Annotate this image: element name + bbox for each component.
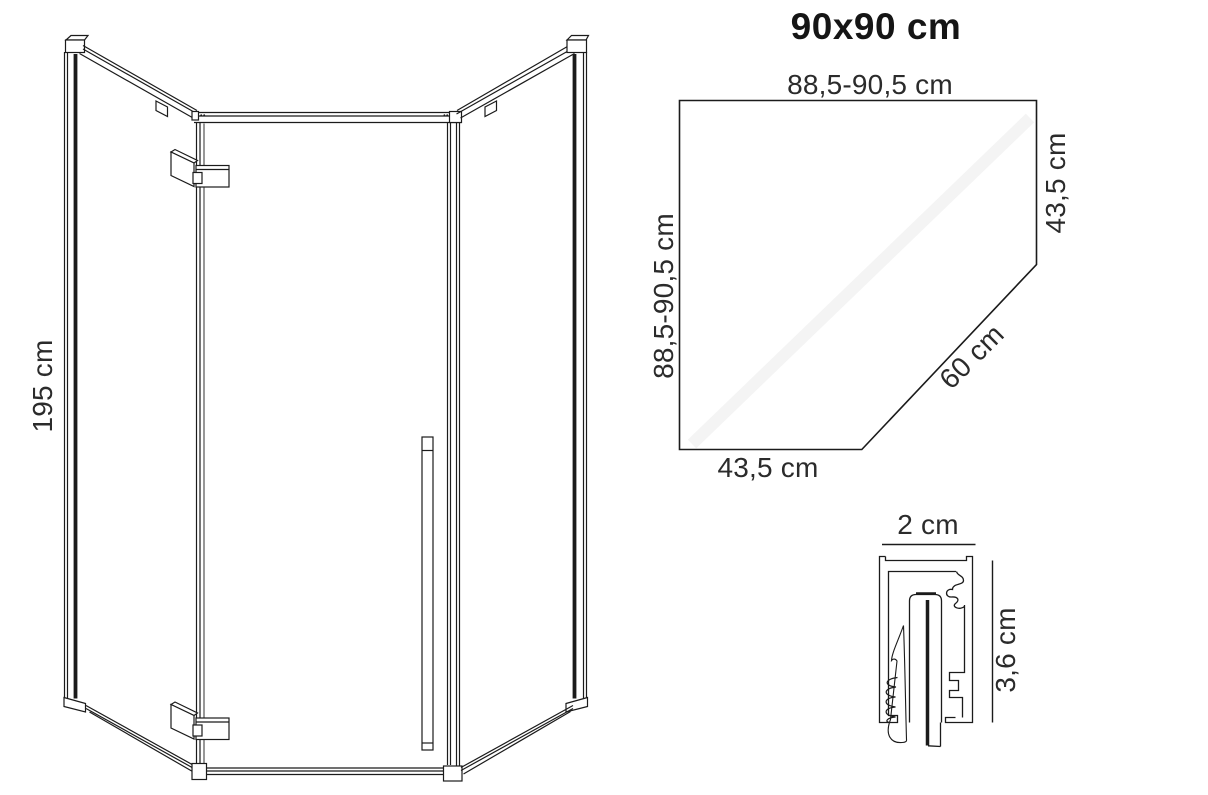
- door-panel: [171, 112, 462, 782]
- front-view-height-label: 195 cm: [29, 339, 57, 432]
- right-bottom-rail-line: [461, 709, 573, 771]
- bottom-hinge-pin-block: [193, 725, 202, 736]
- technical-drawing: [0, 0, 1208, 795]
- door-bottom-left-corner-block: [192, 764, 207, 780]
- right-bottom-end-cap: [566, 698, 588, 713]
- left-top-rail-line: [80, 54, 195, 119]
- door-bottom-right-corner-block: [444, 766, 463, 781]
- right-side-panel: [457, 36, 589, 775]
- screw-dot: [446, 114, 448, 116]
- right-bottom-rail-line: [464, 712, 571, 775]
- screw-dot: [200, 114, 202, 116]
- shower-enclosure-dimension-sheet: 195 cm 90x90 cm 88,5-90,5 cm 88,5-90,5 c…: [0, 0, 1208, 795]
- front-view-drawing: [64, 36, 589, 782]
- door-top-left-corner-block: [192, 112, 199, 121]
- profile-height-label: 3,6 cm: [992, 607, 1020, 692]
- right-top-rail-line: [461, 54, 575, 119]
- left-bottom-end-cap: [64, 698, 86, 713]
- right-top-rail-line: [457, 45, 570, 111]
- top-view-left-depth-label: 88,5-90,5 cm: [650, 213, 678, 379]
- door-top-right-corner-block: [450, 112, 462, 123]
- glass-pane-bottom: [928, 746, 941, 747]
- left-corner-post: [66, 40, 85, 53]
- page-title: 90x90 cm: [791, 6, 962, 48]
- left-wall-bracket: [156, 101, 168, 117]
- profile-clip-detail: [947, 572, 965, 609]
- door-handle: [422, 437, 433, 750]
- screw-dot: [444, 114, 446, 116]
- screw-dot: [203, 114, 205, 116]
- right-bottom-rail-line: [461, 706, 573, 768]
- top-view-top-width-label: 88,5-90,5 cm: [787, 71, 953, 99]
- left-top-rail-line: [83, 49, 198, 114]
- water-deflector-arrow: [888, 626, 906, 743]
- left-side-panel: [64, 36, 198, 774]
- top-view-bottom-side-label: 43,5 cm: [718, 454, 819, 482]
- profile-section-diagram: [880, 545, 993, 747]
- door-handle-bar: [422, 437, 433, 750]
- profile-width-label: 2 cm: [897, 511, 958, 539]
- left-corner-post-top-face: [66, 36, 88, 41]
- right-corner-post: [567, 40, 587, 53]
- top-view-diagram: [680, 101, 1037, 450]
- top-hinge-pin-block: [193, 173, 202, 184]
- right-top-rail-line: [457, 49, 573, 115]
- glass-slot: [910, 595, 942, 723]
- top-view-right-side-label: 43,5 cm: [1042, 133, 1070, 234]
- left-top-rail-line: [83, 46, 197, 111]
- profile-inner-right-hooks: [950, 605, 965, 718]
- right-corner-post-top-face: [567, 36, 589, 41]
